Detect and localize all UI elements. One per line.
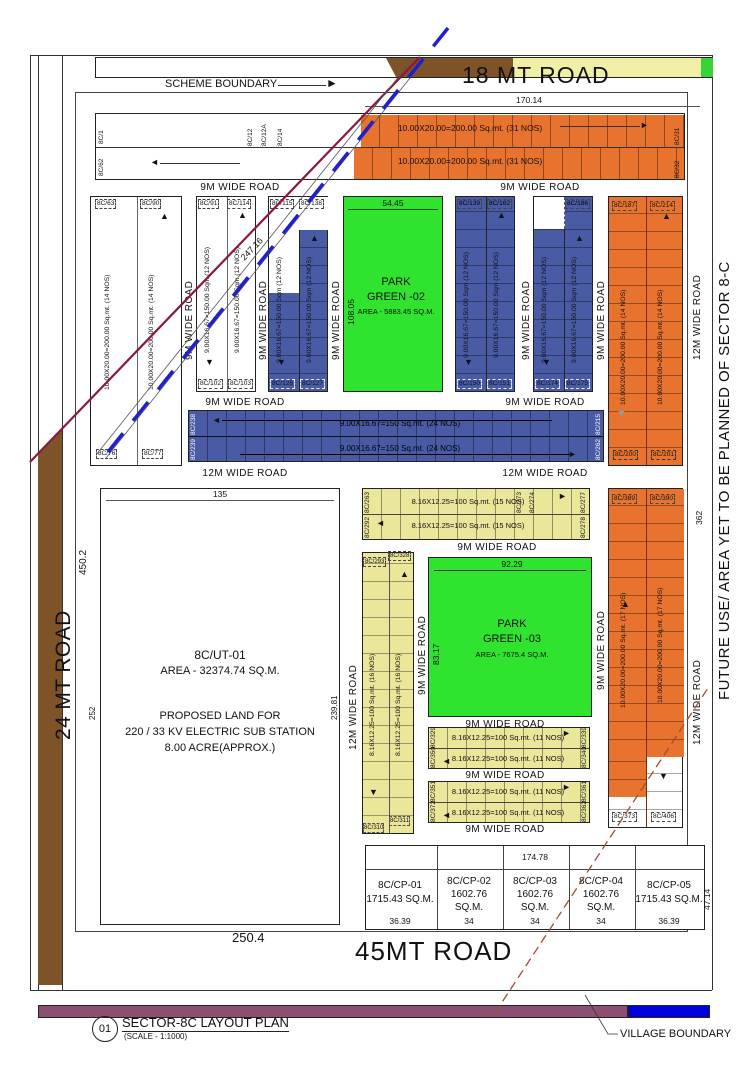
road-45mt-label: 45MT ROAD [355,936,512,967]
block-a-up-arrow-icon: ▲ [160,212,169,221]
dim-170-line [365,106,700,107]
spec-31nos-row2: 10.00X20.00=200.00 Sq.mt. (31 NOS) [398,156,542,166]
block-top-row [95,113,685,180]
cp-div2 [503,846,504,929]
plot-8c351: 8C/351 [430,782,437,802]
spec-11nos-a2: 8.16X12.25=100 Sq.mt. (11 NOS) [452,754,564,763]
gray-down-arrow-icon: ▼ [616,410,627,419]
road-12m-v2: 12M WIDE ROAD [348,630,359,750]
spec-31nos-row1: 10.00X20.00=200.00 Sq.mt. (31 NOS) [398,123,542,133]
cp-dim-depth: 47.14 [702,865,712,910]
road-9m-v1: 9M WIDE ROAD [184,250,195,360]
plot-8c76: 8C/76 [96,449,117,459]
spec-15nos-row1: 8.16X12.25=100 Sq.mt. (15 NOS) [412,497,525,506]
yc16-mid [389,553,390,833]
plot-8c139: 8C/139 [457,199,482,209]
spec-16nos-2: 8.16X12.25=100 Sq.mt. (16 NOS) [395,600,403,810]
blue-strip-rowline [189,436,603,437]
border-right [712,55,713,990]
cp4-area2: SQ.M. [587,902,615,913]
road-12m-v3: 12M WIDE ROAD [692,625,703,745]
plot-8c310: 8C/310 [363,823,384,833]
ys15-row2-arrow-icon: ◄ [376,519,385,528]
top-row1-arrow-stem [560,126,640,127]
plot-8c293: 8C/293 [363,557,386,567]
titleblock-scale: (SCALE - 1:1000) [124,1032,187,1041]
cp3-area2: SQ.M. [521,902,549,913]
block-c-down-arrow-icon: ▼ [277,358,286,367]
plot-8c350: 8C/350 [430,748,437,768]
blue-strip-row2-stem [240,454,570,455]
plot-8c102: 8C/102 [198,379,223,389]
block-e-up-arrow-icon: ▲ [575,234,584,243]
plot-8c328: 8C/328 [388,551,411,561]
road-24mt-label: 24 MT ROAD [52,555,76,740]
block-f-up-arrow-icon: ▲ [662,212,671,221]
block-g-down-arrow-icon: ▼ [659,772,668,781]
top-strip [95,57,712,78]
park3-dim-line [434,570,586,571]
plot-ut01 [100,488,340,925]
titleblock-number-circle: 01 [92,1016,118,1042]
plot-8c262: 8C/262 [595,437,602,460]
road-9m-mid-left: 9M WIDE ROAD [205,397,284,408]
road-9m-top-left: 9M WIDE ROAD [200,182,279,193]
ys11b-rowline [429,802,589,803]
spec-11nos-b1: 8.16X12.25=100 Sq.mt. (11 NOS) [452,787,564,796]
park2-dim-w: 54.45 [382,198,403,208]
road-9m-v5: 9M WIDE ROAD [596,250,607,360]
cp-div1 [437,846,438,929]
road-12m-mid-left: 12M WIDE ROAD [202,468,287,479]
blue-strip-row1-stem [222,420,552,421]
road-9m-v4: 9M WIDE ROAD [521,250,532,360]
spec-c2: 9.00X16.67=150.00 Sqm (12 NOS) [306,240,314,380]
cp1-name: 8C/CP-01 [378,880,422,891]
ys11b-row1-arrow-icon: ► [562,783,571,792]
cp4-name: 8C/CP-04 [579,876,623,887]
plot-8c62: 8C/62 [98,150,105,176]
ys11b-row2-arrow-icon: ◄ [442,811,451,820]
spec-b1: 9.00X16.67=150.00 Sqm (12 NOS) [204,225,212,375]
cp-div4 [635,846,636,929]
spec-d2: 9.00X16.67=150.00 Sqm (12 NOS) [493,230,501,380]
block-d-up-arrow-icon: ▲ [497,211,506,220]
road-9m-v3: 9M WIDE ROAD [331,250,342,360]
cp-dim-total: 174.78 [522,852,548,862]
cp5-width: 36.39 [658,916,679,926]
plot-8c273: 8C/273 [516,490,523,513]
cp1-area: 1715.43 SQ.M. [366,894,433,905]
road-9m-mid-right: 9M WIDE ROAD [505,397,584,408]
plot-8c115: 8C/115 [270,199,294,209]
border-top [30,55,712,56]
cp2-area1: 1602.76 [451,889,487,900]
ut-dim-239: 239.81 [330,665,339,720]
plot-8c114: 8C/114 [227,199,251,209]
plot-8c263: 8C/263 [364,490,371,513]
park3-area: AREA - 7675.4 SQ.M. [476,650,549,659]
plot-8c151: 8C/151 [487,379,512,389]
top-row2-arrow-icon: ◄ [150,158,159,167]
ut-id: 8C/UT-01 [194,648,245,662]
plot-8c373: 8C/373 [612,812,637,822]
park3-dim-h: 83.17 [431,605,441,665]
road-12m-v1: 12M WIDE ROAD [692,240,703,360]
park2-dim-h: 108.05 [346,255,356,325]
cp3-name: 8C/CP-03 [513,876,557,887]
dim-362: 362 [694,495,704,525]
block-b-up-arrow-icon: ▲ [238,211,247,220]
border-bottom [30,990,712,991]
plot-8c32: 8C/32 [674,150,681,178]
plot-8c390: 8C/390 [650,494,675,504]
ys15-rowline [363,514,589,515]
road-9m-bottom: 9M WIDE ROAD [465,824,544,835]
plot-8c77: 8C/77 [142,449,163,459]
plot-8c311: 8C/311 [389,816,410,826]
dim-250: 250.4 [232,930,265,945]
block-g-leg [609,757,646,797]
plot-8c14: 8C/14 [277,118,284,146]
plot-8c274: 8C/274 [529,490,536,513]
cp3-width: 34 [530,916,539,926]
plot-8c31: 8C/31 [674,117,681,145]
road-9m-v6: 9M WIDE ROAD [417,585,428,695]
plot-8c103: 8C/103 [228,379,253,389]
park2-area: AREA - 5883.45 SQ.M. [357,307,434,316]
border-left [30,55,31,990]
plot-8c340: 8C/340 [581,748,588,768]
spec-a1: 10.00X20.00=200.00 Sq.mt. (14 NOS) [104,235,112,430]
plot-8c292: 8C/292 [364,515,371,538]
ut-dim-135-line [106,500,334,501]
ys15-row1-arrow-icon: ► [558,492,567,501]
block-b-down-arrow-icon: ▼ [205,358,214,367]
plot-8c91: 8C/91 [198,199,219,209]
plot-8c277: 8C/277 [580,490,587,513]
layout-plan-canvas: SCHEME BOUNDARY ► 18 MT ROAD 170.14 8C/1… [0,0,740,1065]
plot-8c1: 8C/1 [98,118,105,144]
plot-8c361: 8C/361 [581,782,588,802]
spec-17nos-1: 10.00X20.00=200.00 Sq.mt. (17 NOS) [620,545,628,755]
plot-8c175: 8C/175 [565,379,590,389]
block-c-up-arrow-icon: ▲ [310,234,319,243]
spec-f2: 10.00X20.00=200.00 Sq.mt. (14 NOS) [657,250,665,445]
village-boundary-label: VILLAGE BOUNDARY [620,1028,731,1040]
park3-title1: PARK [497,618,526,630]
block-f-mid [646,197,647,465]
road-9m-top-right: 9M WIDE ROAD [500,182,579,193]
ys11a-rowline [429,748,589,749]
spec-e2: 9.00X16.67=150.00 Sqm (12 NOS) [571,240,579,380]
block-g-up-arrow-icon: ▲ [621,600,630,609]
spec-16nos-1: 8.16X12.25=100 Sq.mt. (16 NOS) [369,600,377,810]
plot-8c63: 8C/63 [95,199,116,209]
plot-8c12: 8C/12 [247,118,254,146]
scheme-boundary-label: SCHEME BOUNDARY [165,78,277,90]
titleblock-title: SECTOR-8C LAYOUT PLAN [122,1015,289,1032]
plot-8c127: 8C/127 [300,379,325,389]
road-9m-between11: 9M WIDE ROAD [465,770,544,781]
spec-11nos-a1: 8.16X12.25=100 Sq.mt. (11 NOS) [452,733,564,742]
road-12m-mid-right: 12M WIDE ROAD [502,468,587,479]
ut-line3: 8.00 ACRE(APPROX.) [165,742,276,754]
scheme-boundary-leader [278,85,326,86]
yc16-down-arrow-icon: ▼ [369,788,378,797]
road-9m-below15: 9M WIDE ROAD [457,542,536,553]
scheme-boundary-arrow-icon: ► [326,79,338,88]
plot-8c12a: 8C/12A [261,116,268,146]
footer-bar-blue [628,1005,710,1018]
dim-170: 170.14 [516,95,542,105]
top-row2-arrow-stem [160,163,240,164]
plot-8c150: 8C/150 [457,379,482,389]
future-use-note: FUTURE USE/ AREA YET TO BE PLANNED OF SE… [716,155,733,700]
plot-8c187: 8C/187 [612,201,637,211]
cp1-width: 36.39 [389,916,410,926]
block-d-mid [486,197,487,391]
ut-line2: 220 / 33 KV ELECTRIC SUB STATION [125,726,315,738]
park2-title2: GREEN -02 [367,291,425,303]
park3-title2: GREEN -03 [483,633,541,645]
cp4-area1: 1602.76 [583,889,619,900]
plot-8c362: 8C/362 [581,802,588,822]
plot-8c214: 8C/214 [650,201,675,211]
ut-area: AREA - 32374.74 SQ.M. [160,665,279,677]
plot-8c174: 8C/174 [535,379,560,389]
spec-b2: 9.00X16.67=150.00 Sqm (12 NOS) [234,225,242,375]
plot-8c339: 8C/339 [581,728,588,748]
plot-8c215: 8C/215 [595,412,602,435]
ut-line1: PROPOSED LAND FOR [159,710,280,722]
spec-24nos-row2: 9.00X16.67=150 Sq.mt. (24 NOS) [340,444,460,453]
plot-8c329: 8C/329 [430,728,437,748]
park3-dim-w: 92.29 [501,559,522,569]
spec-15nos-row2: 8.16X12.25=100 Sq.mt. (15 NOS) [412,521,525,530]
block-d-down-arrow-icon: ▼ [464,358,473,367]
plot-8c389: 8C/389 [612,494,637,504]
plot-8c138: 8C/138 [299,199,324,209]
road-18mt-label: 18 MT ROAD [462,62,610,89]
ys11a-row2-arrow-icon: ◄ [442,757,451,766]
plot-8c201: 8C/201 [651,450,676,460]
top-strip-green [701,58,713,77]
park2-dim-line [348,209,438,210]
border-left3 [62,55,63,990]
cp4-width: 34 [596,916,605,926]
spec-17nos-2: 10.00X20.00=200.00 Sq.mt. (17 NOS) [657,540,665,750]
ys11a-row1-arrow-icon: ► [562,729,571,738]
park2-title1: PARK [381,276,410,288]
block-top-rowline [96,147,684,148]
cp5-area: 1715.43 SQ.M. [635,894,702,905]
plot-8c238: 8C/238 [190,412,197,435]
plot-8c200: 8C/200 [613,450,638,460]
block-e-down-arrow-icon: ▼ [542,358,551,367]
cp2-width: 34 [464,916,473,926]
spec-11nos-b2: 8.16X12.25=100 Sq.mt. (11 NOS) [452,808,564,817]
top-row1-arrow-icon: ► [640,121,649,130]
plot-8c186: 8C/186 [565,199,590,209]
block-c-white1 [269,197,299,293]
titleblock-number: 01 [99,1023,111,1035]
cp-div3 [569,846,570,929]
blue-strip-row1-arrow-icon: ◄ [212,416,221,425]
cp-header-line [366,869,704,870]
spec-a2: 10.00X20.00=200.00 Sq.mt. (14 NOS) [148,235,156,430]
plot-8c278: 8C/278 [580,515,587,538]
block-e-white1 [534,197,565,229]
plot-8c406: 8C/406 [651,812,676,822]
plot-8c126: 8C/126 [270,379,295,389]
dim-450: 450.2 [78,515,89,575]
yellow-strip-15 [362,488,590,540]
block-g-mid [646,489,647,827]
block-a-mid [137,197,138,465]
plot-8c372: 8C/372 [430,802,437,822]
ut-dim-252: 252 [88,680,97,720]
cp2-name: 8C/CP-02 [447,876,491,887]
plot-8c90: 8C/90 [140,199,161,209]
yc16-up-arrow-icon: ▲ [400,570,409,579]
cp3-area1: 1602.76 [517,889,553,900]
plot-8c239: 8C/239 [190,437,197,460]
plot-8c162: 8C/162 [487,199,512,209]
ut-dim-135: 135 [213,489,227,499]
cp2-area2: SQ.M. [455,902,483,913]
cp5-name: 8C/CP-05 [647,880,691,891]
block-b-mid [227,197,228,391]
road-9m-v7: 9M WIDE ROAD [596,580,607,690]
